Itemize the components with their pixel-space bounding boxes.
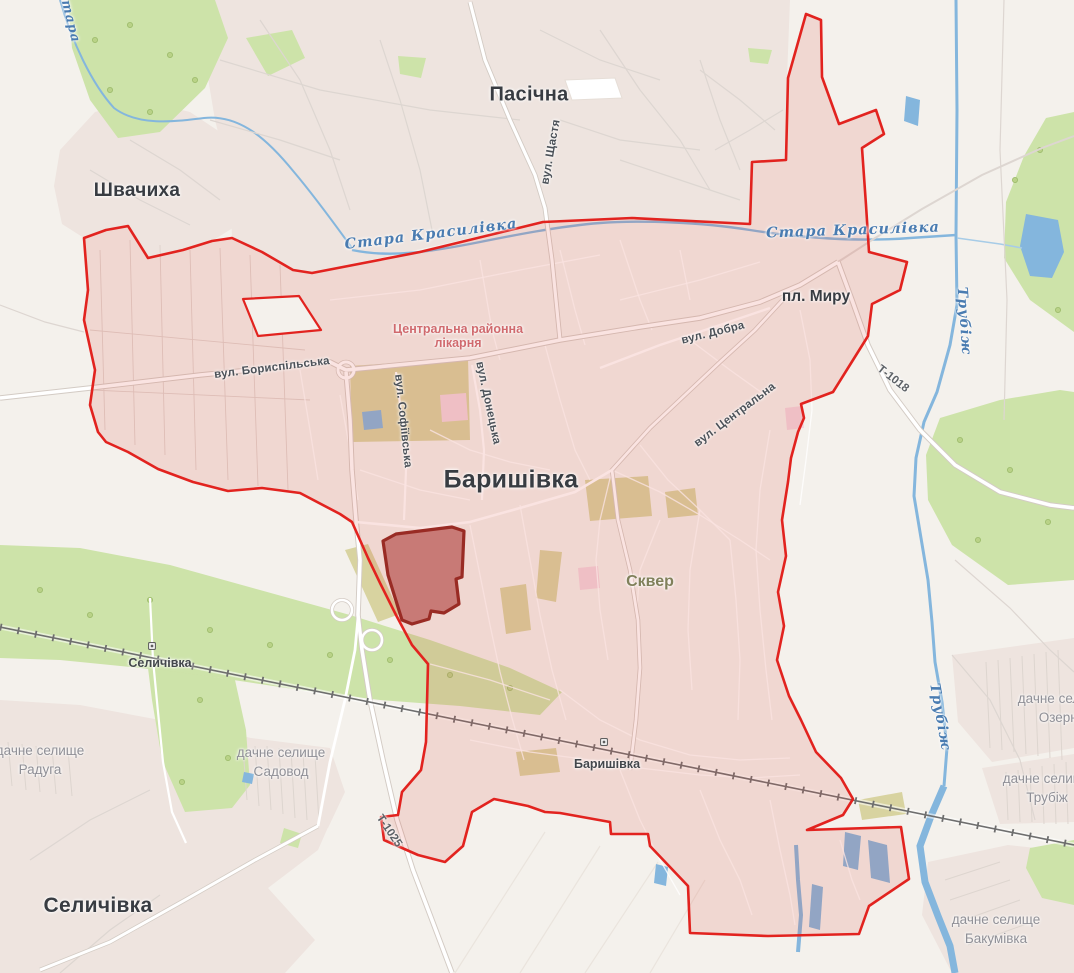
dacha-label-name: Радуга <box>0 760 84 779</box>
railway-station-icon <box>149 643 156 650</box>
dacha-label-name: Бакумівка <box>952 929 1041 948</box>
dacha-label-line1: дачне селище <box>237 743 326 762</box>
station-label-baryshivka: Баришівка <box>574 757 640 771</box>
dacha-label-bakumivka: дачне селище Бакумівка <box>952 910 1041 948</box>
town-label-pasichna: Пасічна <box>489 84 568 107</box>
dacha-label-ozerne: дачне селище Озерне <box>1018 689 1074 727</box>
town-label-shvachykha: Швачиха <box>94 180 181 202</box>
hospital-label-line2: лікарня <box>393 336 523 350</box>
poi-label-hospital: Центральна районна лікарня <box>393 322 523 350</box>
dacha-label-name: Озерне <box>1018 708 1074 727</box>
town-label-selychivka: Селичівка <box>44 894 153 918</box>
railway-station-icon <box>601 739 608 746</box>
park-label-skver: Сквер <box>626 573 674 591</box>
dacha-label-line1: дачне селище <box>1003 769 1074 788</box>
hospital-label-line1: Центральна районна <box>393 322 523 336</box>
dacha-label-name: Садовод <box>237 762 326 781</box>
town-label-baryshivka: Баришівка <box>444 466 579 495</box>
dacha-label-trubizh: дачне селище Трубіж <box>1003 769 1074 807</box>
dacha-label-raduga: дачне селище Радуга <box>0 741 84 779</box>
station-label-selychivka: Селичівка <box>128 656 191 670</box>
map-viewport[interactable]: Пасічна Швачиха Баришівка Селичівка Сели… <box>0 0 1074 973</box>
square-label-pl-myru: пл. Миру <box>782 288 850 306</box>
dacha-label-line1: дачне селище <box>0 741 84 760</box>
dacha-label-name: Трубіж <box>1003 788 1074 807</box>
dacha-label-sadovod: дачне селище Садовод <box>237 743 326 781</box>
dacha-label-line1: дачне селище <box>1018 689 1074 708</box>
dacha-label-line1: дачне селище <box>952 910 1041 929</box>
